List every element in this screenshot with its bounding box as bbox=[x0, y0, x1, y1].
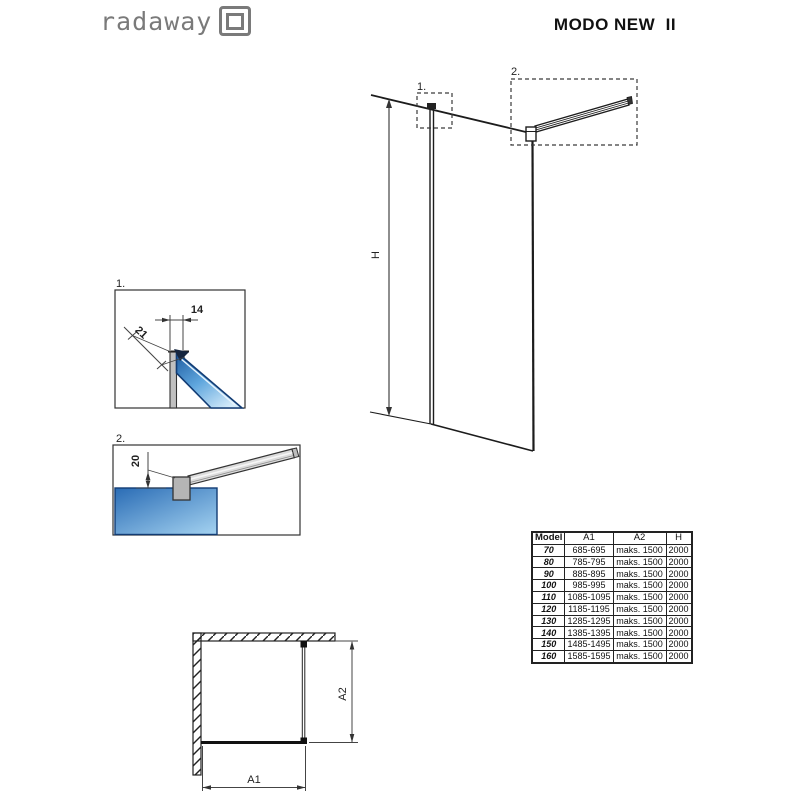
detail2-dim20-value: 20 bbox=[130, 455, 142, 467]
a1-cell: 785-795 bbox=[565, 556, 613, 568]
detail1-callout-label: 1. bbox=[417, 81, 426, 93]
model-cell: 160 bbox=[532, 650, 565, 662]
plan-drawing: A1 A2 bbox=[180, 625, 365, 795]
brand-wordmark: radaway bbox=[100, 9, 212, 34]
walls bbox=[193, 633, 335, 775]
brand-square-icon bbox=[219, 6, 251, 36]
h-cell: 2000 bbox=[666, 650, 692, 662]
model-cell: 70 bbox=[532, 544, 565, 556]
a1-cell: 1185-1195 bbox=[565, 603, 613, 615]
wall-profile-cap bbox=[427, 103, 436, 109]
table-body: 70 685-695 maks. 1500 2000 80 785-795 ma… bbox=[532, 544, 692, 662]
plan-dim-a1-label: A1 bbox=[247, 774, 260, 786]
h-cell: 2000 bbox=[666, 556, 692, 568]
a1-cell: 1285-1295 bbox=[565, 615, 613, 627]
model-cell: 140 bbox=[532, 627, 565, 639]
a1-cell: 1385-1395 bbox=[565, 627, 613, 639]
model-cell: 90 bbox=[532, 568, 565, 580]
a2-cell: maks. 1500 bbox=[613, 603, 666, 615]
arrow-down-icon bbox=[386, 407, 392, 416]
detail1-dim14-value: 14 bbox=[191, 304, 204, 316]
table-row: 100 985-995 maks. 1500 2000 bbox=[532, 580, 692, 592]
a1-cell: 985-995 bbox=[565, 580, 613, 592]
model-cell: 120 bbox=[532, 603, 565, 615]
height-dim-label: H bbox=[370, 251, 382, 259]
plan-dim-a2 bbox=[309, 641, 358, 743]
detail1-dim21-value: 21 bbox=[132, 324, 149, 341]
table-row: 130 1285-1295 maks. 1500 2000 bbox=[532, 615, 692, 627]
plan-support-bar bbox=[301, 641, 308, 744]
table-row: 120 1185-1195 maks. 1500 2000 bbox=[532, 603, 692, 615]
detail2-callout-label: 2. bbox=[511, 66, 520, 78]
a1-cell: 1085-1095 bbox=[565, 591, 613, 603]
a2-cell: maks. 1500 bbox=[613, 639, 666, 651]
table-row: 80 785-795 maks. 1500 2000 bbox=[532, 556, 692, 568]
model-cell: 80 bbox=[532, 556, 565, 568]
table-row: 160 1585-1595 maks. 1500 2000 bbox=[532, 650, 692, 662]
elevation-drawing: H 1. 2. bbox=[360, 60, 650, 470]
h-cell: 2000 bbox=[666, 591, 692, 603]
detail1-drawing: 1. 14 21 bbox=[105, 272, 255, 414]
a2-cell: maks. 1500 bbox=[613, 591, 666, 603]
glass-clamp-bracket bbox=[526, 127, 536, 141]
page: radaway MODO NEW II H 1. 2. bbox=[0, 0, 800, 800]
glass-edge-section bbox=[115, 488, 217, 535]
model-cell: 100 bbox=[532, 580, 565, 592]
size-table: Model A1 A2 H 70 685-695 maks. 1500 2000… bbox=[531, 531, 693, 664]
col-header-model: Model bbox=[532, 532, 565, 544]
top-wall bbox=[193, 633, 335, 641]
a2-cell: maks. 1500 bbox=[613, 568, 666, 580]
h-cell: 2000 bbox=[666, 580, 692, 592]
detail2-label: 2. bbox=[116, 433, 125, 445]
table-row: 110 1085-1095 maks. 1500 2000 bbox=[532, 591, 692, 603]
h-cell: 2000 bbox=[666, 544, 692, 556]
table-row: 140 1385-1395 maks. 1500 2000 bbox=[532, 627, 692, 639]
model-cell: 110 bbox=[532, 591, 565, 603]
h-cell: 2000 bbox=[666, 615, 692, 627]
height-dimension: H bbox=[370, 99, 392, 416]
a1-cell: 685-695 bbox=[565, 544, 613, 556]
table-header-row: Model A1 A2 H bbox=[532, 532, 692, 544]
left-wall bbox=[193, 633, 201, 775]
a1-cell: 1585-1595 bbox=[565, 650, 613, 662]
table-row: 90 885-895 maks. 1500 2000 bbox=[532, 568, 692, 580]
col-header-h: H bbox=[666, 532, 692, 544]
a2-cell: maks. 1500 bbox=[613, 650, 666, 662]
col-header-a1: A1 bbox=[565, 532, 613, 544]
detail1-frame bbox=[115, 290, 245, 408]
a1-cell: 1485-1495 bbox=[565, 639, 613, 651]
table-row: 70 685-695 maks. 1500 2000 bbox=[532, 544, 692, 556]
col-header-a2: A2 bbox=[613, 532, 666, 544]
a2-cell: maks. 1500 bbox=[613, 544, 666, 556]
glass-section bbox=[174, 349, 242, 408]
plan-dim-a2-label: A2 bbox=[337, 687, 349, 700]
a2-cell: maks. 1500 bbox=[613, 627, 666, 639]
support-bar bbox=[535, 97, 633, 133]
glass-panel-outline bbox=[370, 95, 534, 451]
a2-cell: maks. 1500 bbox=[613, 580, 666, 592]
h-cell: 2000 bbox=[666, 627, 692, 639]
detail2-drawing: 2. 20 bbox=[80, 425, 315, 540]
model-cell: 130 bbox=[532, 615, 565, 627]
h-cell: 2000 bbox=[666, 568, 692, 580]
h-cell: 2000 bbox=[666, 639, 692, 651]
a2-cell: maks. 1500 bbox=[613, 556, 666, 568]
page-title: MODO NEW II bbox=[520, 15, 710, 35]
table-row: 150 1485-1495 maks. 1500 2000 bbox=[532, 639, 692, 651]
clamp-bracket bbox=[173, 477, 190, 500]
support-bar-3d bbox=[188, 448, 299, 485]
brand-square-inner-icon bbox=[226, 13, 244, 30]
detail1-label: 1. bbox=[116, 278, 125, 290]
model-cell: 150 bbox=[532, 639, 565, 651]
h-cell: 2000 bbox=[666, 603, 692, 615]
brand-logo: radaway bbox=[100, 6, 251, 36]
a2-cell: maks. 1500 bbox=[613, 615, 666, 627]
detail1-dim-14 bbox=[155, 315, 198, 350]
a1-cell: 885-895 bbox=[565, 568, 613, 580]
